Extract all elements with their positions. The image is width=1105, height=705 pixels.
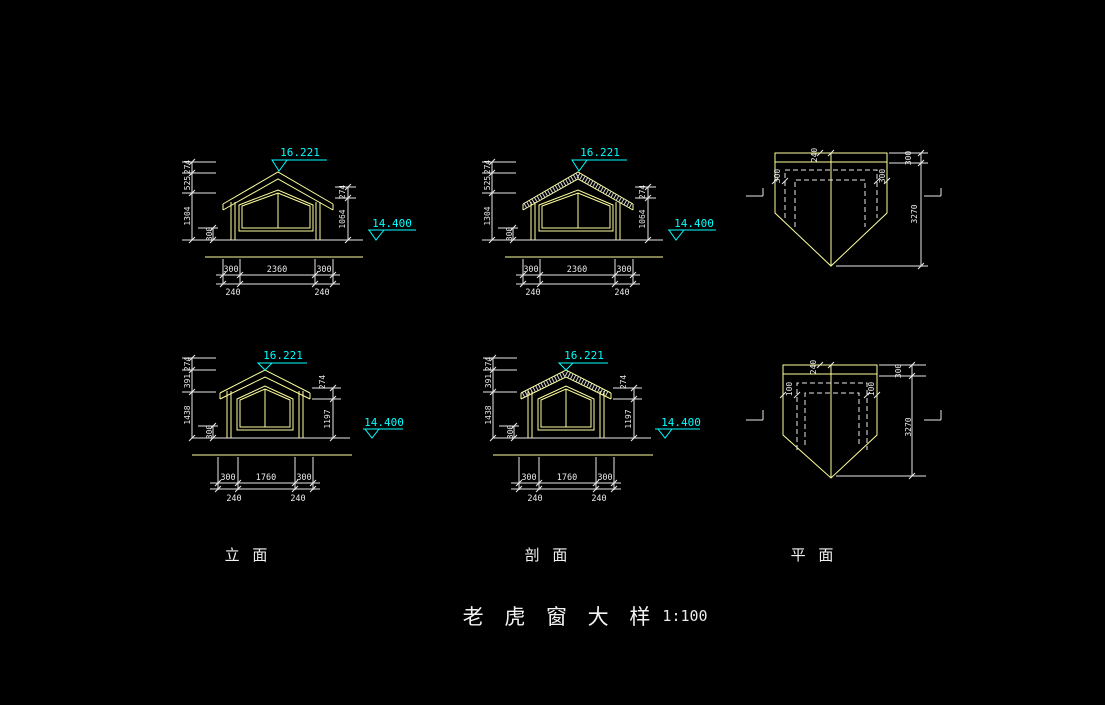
eave-level-text: 14.400	[372, 217, 412, 230]
dim-text: 391	[484, 374, 493, 389]
level-marker-eave	[363, 429, 403, 438]
dimension-ticks	[780, 362, 915, 479]
dim-text: 2360	[267, 265, 287, 275]
dimension-lines	[493, 358, 634, 489]
dim-text: 240	[527, 494, 542, 504]
eave-level-text: 14.400	[674, 217, 714, 230]
window-frame	[539, 190, 613, 231]
dim-text: 1064	[638, 209, 647, 228]
dim-text: 525	[183, 176, 192, 191]
view-section-bottom: 16.221 14.400 274 391 1438 300 274 1197 …	[483, 349, 701, 504]
dim-text: 300	[506, 425, 515, 440]
dimension-ticks	[490, 355, 637, 492]
dim-text: 2360	[567, 265, 587, 275]
dim-text: 1760	[256, 473, 276, 483]
eave-level-text: 14.400	[661, 416, 701, 429]
dim-text: 274	[183, 357, 192, 372]
window-frame	[237, 386, 293, 430]
cad-drawing-canvas: 16.221 14.400 274 525 1304 300 274 1064 …	[0, 0, 1105, 705]
dim-text: 1438	[183, 405, 192, 424]
label-plan: 平 面	[791, 546, 838, 564]
annotations: 立 面 剖 面 平 面 老 虎 窗 大 样 1:100	[225, 546, 838, 629]
dim-text: 3270	[910, 204, 919, 223]
dim-text: 300	[296, 473, 311, 483]
dim-text: 274	[483, 160, 492, 175]
dim-text: 1304	[183, 206, 192, 225]
dormer-detail-drawing: 16.221 14.400 274 525 1304 300 274 1064 …	[0, 0, 1105, 705]
wall-columns	[231, 202, 320, 240]
view-plan-bottom: 240 100 100 300 3270	[746, 360, 941, 479]
dim-text: 240	[591, 494, 606, 504]
dim-text: 100	[867, 382, 876, 397]
drawing-scale: 1:100	[662, 607, 707, 625]
dimension-lines	[192, 358, 333, 489]
dim-text: 300	[894, 364, 903, 379]
dim-text: 240	[226, 494, 241, 504]
dim-text: 300	[505, 227, 514, 242]
dim-text: 300	[878, 169, 887, 184]
view-elevation-top: 16.221 14.400 274 525 1304 300 274 1064 …	[182, 146, 416, 298]
level-marker-ridge	[559, 363, 608, 370]
dim-text: 100	[785, 382, 794, 397]
dim-text: 1064	[338, 209, 347, 228]
dim-text: 300	[523, 265, 538, 275]
dim-text: 1304	[483, 206, 492, 225]
wall-columns	[531, 202, 620, 240]
dim-text: 391	[183, 374, 192, 389]
dim-text: 240	[809, 360, 818, 375]
ridge-level-text: 16.221	[580, 146, 620, 159]
dim-text: 300	[205, 227, 214, 242]
dim-text: 1760	[557, 473, 577, 483]
dim-text: 274	[338, 185, 347, 200]
ridge-level-text: 16.221	[263, 349, 303, 362]
dim-text: 274	[619, 375, 628, 390]
eave-level-text: 14.400	[364, 416, 404, 429]
dim-text: 240	[614, 288, 629, 298]
dim-text: 274	[183, 160, 192, 175]
label-section: 剖 面	[525, 546, 572, 564]
dim-text: 300	[521, 473, 536, 483]
window-frame	[239, 190, 313, 231]
dim-text: 240	[525, 288, 540, 298]
dim-text: 240	[290, 494, 305, 504]
dim-text: 3270	[904, 417, 913, 436]
dim-text: 300	[904, 151, 913, 166]
ridge-level-text: 16.221	[564, 349, 604, 362]
plan-outline	[775, 153, 887, 266]
level-marker-ridge	[272, 160, 327, 171]
level-marker-eave	[368, 230, 416, 240]
level-marker-eave	[668, 230, 716, 240]
dim-text: 300	[616, 265, 631, 275]
dim-text: 1197	[323, 409, 332, 428]
level-marker-ridge	[258, 363, 307, 370]
dim-text: 240	[225, 288, 240, 298]
dim-text: 1197	[624, 409, 633, 428]
hidden-roof-edges	[797, 383, 867, 450]
dim-text: 300	[205, 425, 214, 440]
dimension-ticks	[189, 355, 336, 492]
drawing-title: 老 虎 窗 大 样	[463, 605, 658, 629]
ridge-level-text: 16.221	[280, 146, 320, 159]
dim-text: 300	[223, 265, 238, 275]
dim-text: 274	[638, 185, 647, 200]
label-elevation: 立 面	[225, 546, 272, 564]
dim-text: 300	[597, 473, 612, 483]
dim-text: 1438	[484, 405, 493, 424]
view-elevation-bottom: 16.221 14.400 274 391 1438 300 274 1197 …	[182, 349, 404, 504]
view-plan-top: 240 300 300 300 3270	[746, 148, 941, 269]
dim-text: 274	[318, 375, 327, 390]
dim-text: 240	[314, 288, 329, 298]
dim-text: 240	[810, 148, 819, 163]
dim-text: 300	[220, 473, 235, 483]
dim-text: 274	[484, 357, 493, 372]
view-section-top: 16.221 14.400 274 525 1304 300 274 1064 …	[482, 146, 716, 298]
dim-text: 525	[483, 176, 492, 191]
dim-text: 300	[773, 169, 782, 184]
level-marker-eave	[655, 429, 700, 438]
window-frame	[538, 386, 594, 430]
dim-text: 300	[316, 265, 331, 275]
level-marker-ridge	[572, 160, 627, 171]
